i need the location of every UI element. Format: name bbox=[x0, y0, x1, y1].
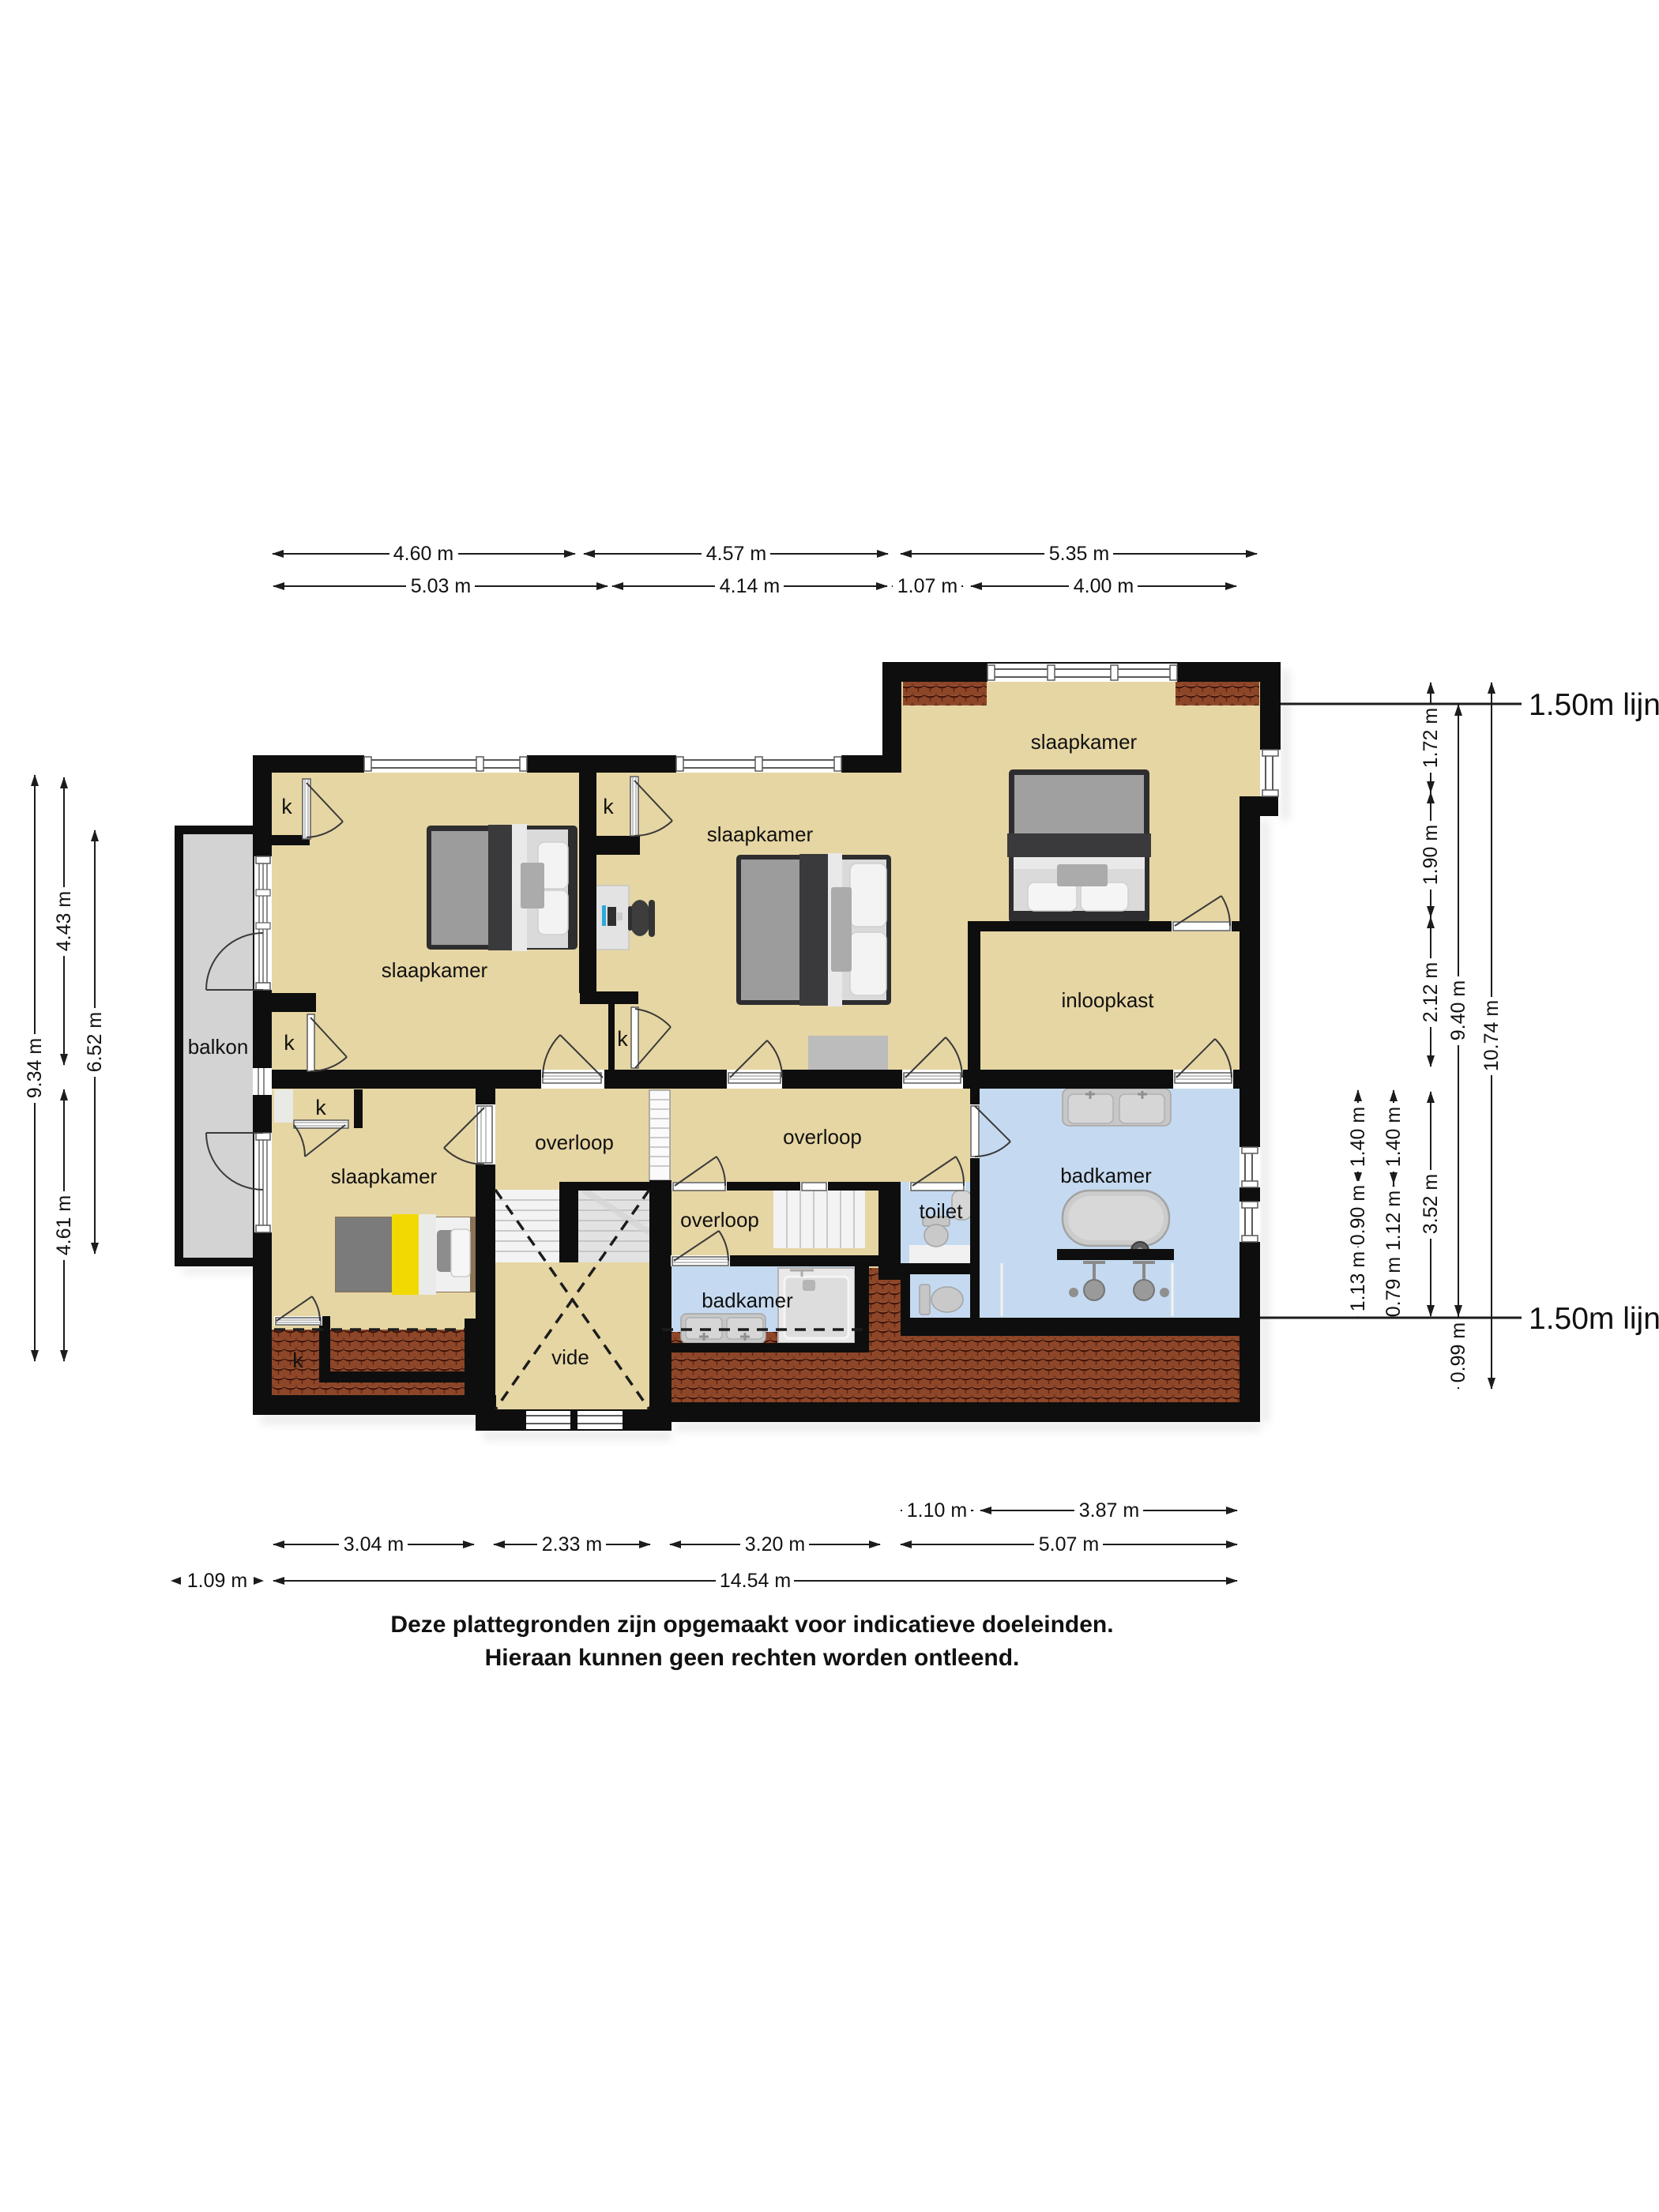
svg-text:k: k bbox=[292, 1349, 303, 1372]
svg-text:k: k bbox=[315, 1096, 326, 1119]
svg-text:overloop: overloop bbox=[783, 1125, 862, 1149]
svg-text:1.90 m: 1.90 m bbox=[1420, 825, 1442, 885]
svg-text:1.13 m: 1.13 m bbox=[1347, 1251, 1369, 1311]
svg-text:0.90 m: 0.90 m bbox=[1347, 1185, 1369, 1245]
svg-text:badkamer: badkamer bbox=[702, 1288, 793, 1312]
svg-text:k: k bbox=[617, 1027, 628, 1051]
svg-text:slaapkamer: slaapkamer bbox=[707, 822, 814, 846]
svg-text:1.10 m: 1.10 m bbox=[907, 1499, 967, 1522]
svg-text:3.87 m: 3.87 m bbox=[1079, 1499, 1139, 1522]
svg-text:2.12 m: 2.12 m bbox=[1420, 962, 1442, 1022]
svg-text:6.52 m: 6.52 m bbox=[84, 1012, 106, 1072]
svg-text:0.79 m: 0.79 m bbox=[1382, 1257, 1405, 1317]
svg-text:slaapkamer: slaapkamer bbox=[1031, 730, 1138, 754]
svg-text:balkon: balkon bbox=[188, 1035, 249, 1059]
svg-text:Hieraan kunnen geen rechten wo: Hieraan kunnen geen rechten worden ontle… bbox=[485, 1645, 1020, 1671]
svg-text:k: k bbox=[284, 1031, 295, 1055]
svg-text:3.52 m: 3.52 m bbox=[1420, 1174, 1442, 1234]
svg-text:14.54 m: 14.54 m bbox=[720, 1570, 791, 1592]
svg-text:4.14 m: 4.14 m bbox=[720, 575, 780, 597]
svg-text:1.07 m: 1.07 m bbox=[897, 575, 957, 597]
svg-text:4.43 m: 4.43 m bbox=[53, 891, 75, 951]
svg-text:2.33 m: 2.33 m bbox=[542, 1533, 602, 1556]
svg-text:1.50m lijn: 1.50m lijn bbox=[1529, 688, 1659, 722]
svg-text:badkamer: badkamer bbox=[1060, 1164, 1152, 1187]
svg-text:inloopkast: inloopkast bbox=[1061, 988, 1154, 1012]
svg-text:1.12 m: 1.12 m bbox=[1382, 1191, 1405, 1251]
svg-text:3.20 m: 3.20 m bbox=[745, 1533, 805, 1556]
svg-text:1.09 m: 1.09 m bbox=[187, 1570, 247, 1592]
svg-text:4.61 m: 4.61 m bbox=[53, 1195, 75, 1255]
svg-text:vide: vide bbox=[551, 1345, 589, 1369]
svg-text:slaapkamer: slaapkamer bbox=[382, 958, 488, 982]
svg-text:Deze plattegronden zijn opgema: Deze plattegronden zijn opgemaakt voor i… bbox=[390, 1612, 1113, 1638]
svg-text:4.57 m: 4.57 m bbox=[706, 543, 766, 565]
svg-text:4.60 m: 4.60 m bbox=[393, 543, 453, 565]
svg-text:overloop: overloop bbox=[680, 1208, 759, 1232]
svg-text:k: k bbox=[603, 795, 614, 818]
svg-text:5.07 m: 5.07 m bbox=[1039, 1533, 1099, 1556]
svg-text:0.99 m: 0.99 m bbox=[1447, 1322, 1469, 1382]
svg-text:5.35 m: 5.35 m bbox=[1049, 543, 1109, 565]
svg-text:1.72 m: 1.72 m bbox=[1420, 708, 1442, 768]
svg-text:3.04 m: 3.04 m bbox=[344, 1533, 404, 1556]
svg-text:1.40 m: 1.40 m bbox=[1347, 1107, 1369, 1167]
svg-text:slaapkamer: slaapkamer bbox=[331, 1164, 438, 1188]
svg-text:10.74 m: 10.74 m bbox=[1480, 1000, 1503, 1071]
svg-text:toilet: toilet bbox=[920, 1199, 964, 1223]
svg-text:9.40 m: 9.40 m bbox=[1447, 980, 1469, 1040]
svg-text:k: k bbox=[281, 795, 292, 818]
svg-text:9.34 m: 9.34 m bbox=[24, 1038, 46, 1098]
svg-text:4.00 m: 4.00 m bbox=[1074, 575, 1134, 597]
svg-text:5.03 m: 5.03 m bbox=[411, 575, 471, 597]
svg-text:overloop: overloop bbox=[535, 1130, 614, 1154]
svg-text:1.50m lijn: 1.50m lijn bbox=[1529, 1302, 1659, 1336]
svg-text:1.40 m: 1.40 m bbox=[1382, 1107, 1405, 1167]
